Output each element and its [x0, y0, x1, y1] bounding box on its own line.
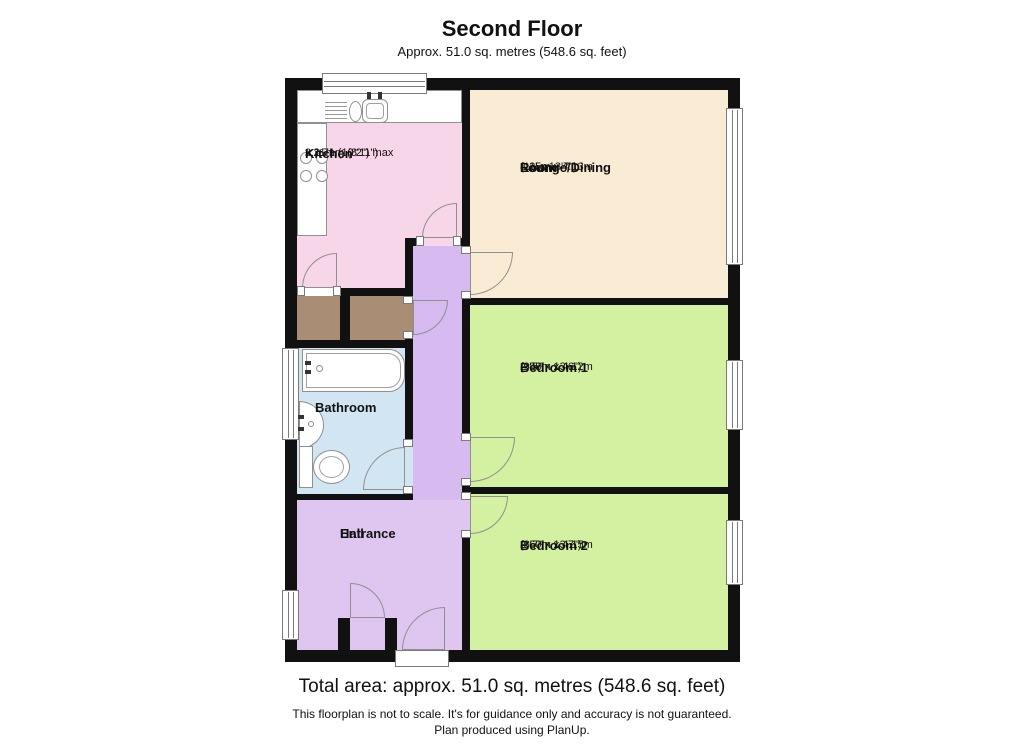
wall-closet-stub-right [385, 618, 397, 650]
toilet-bowl-icon [313, 450, 350, 484]
page-title: Second Floor [0, 16, 1024, 42]
page-subtitle: Approx. 51.0 sq. metres (548.6 sq. feet) [0, 44, 1024, 59]
door-jamb [403, 439, 413, 447]
door-jamb [453, 236, 461, 246]
cupboard1-floor [297, 296, 340, 340]
floorplan: Kitchen 3.11m (10'2") max x 2.71m (8'11"… [285, 78, 740, 662]
bedroom2-floor [470, 494, 728, 650]
sink-drainer-icon [325, 102, 347, 120]
bedroom2-window [726, 520, 743, 585]
door-jamb [416, 236, 424, 246]
sink-tap-icon [378, 92, 382, 99]
bath-tap-icon [305, 370, 311, 374]
wall-kitchen-bottom-b [337, 288, 412, 296]
wall-cupboard-divider [340, 296, 350, 340]
door-jamb [461, 433, 471, 441]
wall-corridor-left-a [405, 246, 413, 300]
wall-corridor-left-b [405, 335, 413, 443]
door-jamb [297, 286, 305, 296]
wall-lounge-bottom [462, 298, 728, 305]
sink-basin-icon [362, 99, 388, 123]
window-pane [324, 81, 425, 87]
wall-bathroom-bottom [285, 494, 413, 500]
door-jamb [461, 246, 471, 254]
bath-tap-icon [305, 361, 311, 365]
wall-outer-bottom-left [285, 650, 402, 662]
sink-tap-icon [367, 92, 371, 99]
bathroom-sink-tap-icon [298, 427, 304, 431]
window-pane [288, 350, 294, 438]
credit-text: Plan produced using PlanUp. [0, 723, 1024, 737]
total-area-text: Total area: approx. 51.0 sq. metres (548… [0, 676, 1024, 698]
toilet-bowl-inner [319, 456, 344, 478]
wall-bedroom1-bottom [462, 487, 728, 494]
room-name: Bathroom [315, 400, 376, 417]
kitchen-window [322, 73, 427, 94]
room-name: Hall [340, 526, 364, 543]
sink-basin-inner [366, 103, 384, 119]
hob-ring-icon [316, 170, 328, 182]
door-jamb [403, 296, 413, 304]
wall-closet-stub-left [338, 618, 350, 650]
door-jamb [461, 492, 471, 500]
wall-center-d [462, 534, 470, 650]
bath-drain-icon [316, 365, 323, 372]
room-dim: (8'7" x 13'7") [520, 538, 582, 552]
window-pane [288, 592, 294, 638]
lounge-window [726, 108, 743, 265]
room-dim: x 2.71m (8'11") [305, 146, 378, 160]
window-pane [732, 522, 738, 583]
bathroom-window [282, 348, 299, 440]
bathroom-sink-drain-icon [308, 421, 314, 427]
disclaimer-text: This floorplan is not to scale. It's for… [0, 707, 1024, 721]
entrance-threshold [395, 650, 449, 667]
wall-bathroom-top [297, 340, 405, 348]
door-jamb [461, 291, 471, 299]
door-jamb [333, 286, 341, 296]
door-jamb [403, 486, 413, 494]
door-jamb [461, 530, 471, 538]
door-jamb [403, 331, 413, 339]
hob-ring-icon [300, 170, 312, 182]
window-pane [732, 362, 738, 428]
bathroom-sink-tap-icon [298, 415, 304, 419]
door-jamb [461, 478, 471, 486]
window-pane [732, 110, 738, 263]
wall-center-b [462, 295, 470, 437]
wall-outer-bottom-right [445, 650, 740, 662]
bedroom1-window [726, 360, 743, 430]
toilet-cistern-icon [299, 446, 313, 488]
room-dim: (9'5" x 13'6") [520, 360, 582, 374]
hall-window [282, 590, 299, 640]
room-dim: (11' x 13'7") [520, 160, 577, 174]
floorplan-page: Second Floor Approx. 51.0 sq. metres (54… [0, 0, 1024, 744]
sink-bowl-icon [349, 101, 362, 122]
wall-center-a [462, 90, 470, 252]
